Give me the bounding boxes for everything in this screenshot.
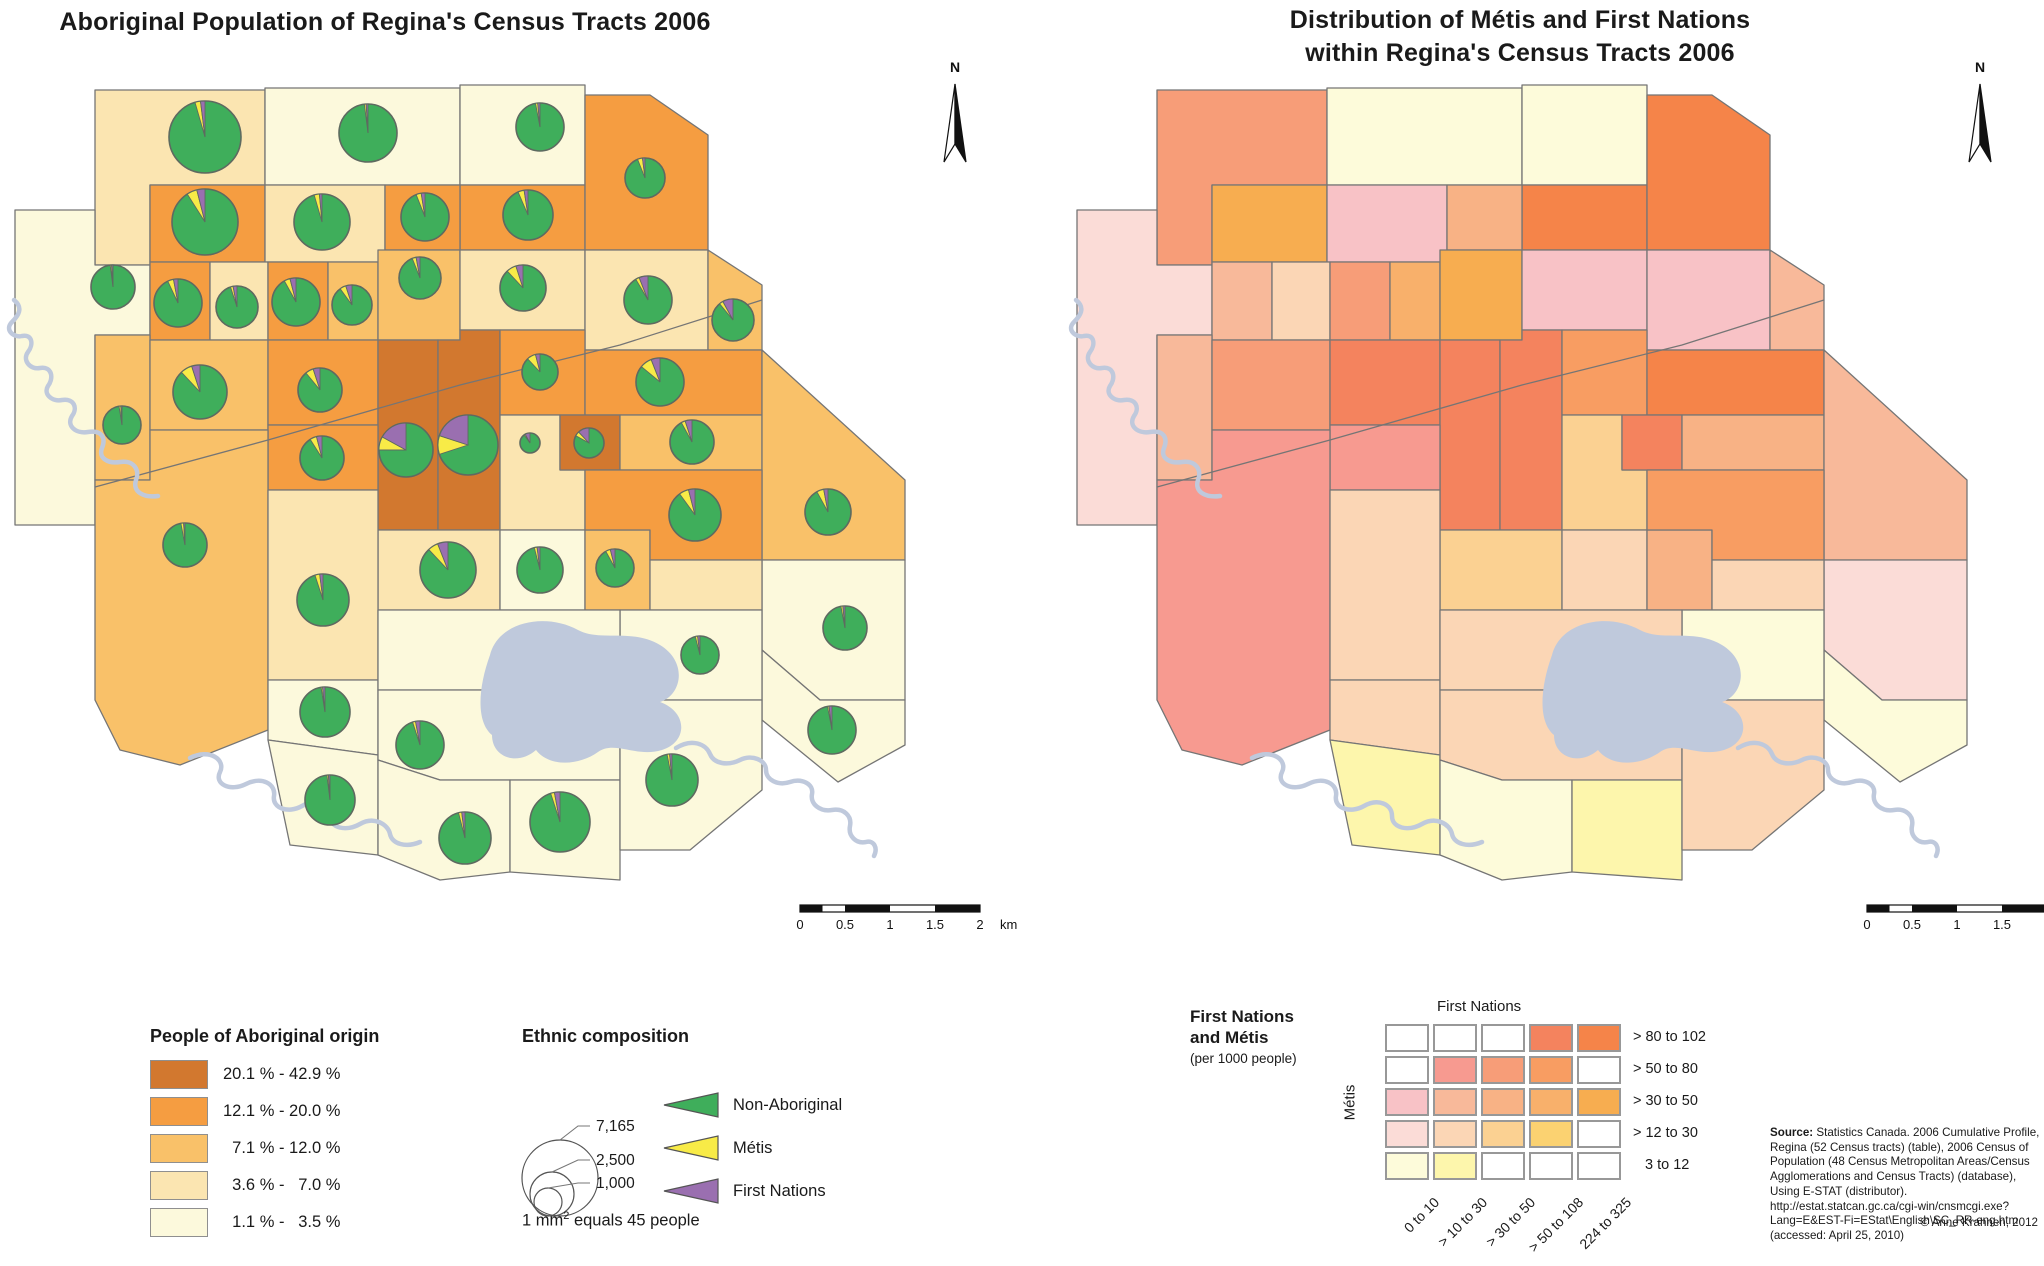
north-arrow-left-half bbox=[944, 84, 955, 162]
scale-bar: 00.511.52km bbox=[1863, 905, 2044, 932]
census-tract bbox=[1770, 250, 1824, 350]
wedge-label: Métis bbox=[733, 1139, 772, 1158]
pie-chart bbox=[332, 285, 372, 325]
matrix-row-label: 3 to 12 bbox=[1633, 1157, 1689, 1173]
north-label: N bbox=[950, 59, 960, 75]
bivariate-cell bbox=[1577, 1088, 1621, 1116]
census-tract bbox=[1390, 262, 1440, 340]
leader-line bbox=[560, 1126, 590, 1140]
scalebar-unit: km bbox=[1000, 917, 1017, 932]
class-label: 7.1 % - 12.0 % bbox=[223, 1139, 340, 1158]
bivariate-cell bbox=[1529, 1120, 1573, 1148]
pie-chart bbox=[401, 193, 449, 241]
pie-chart bbox=[300, 687, 350, 737]
bivariate-cell bbox=[1433, 1056, 1477, 1084]
ethnic-composition-title: Ethnic composition bbox=[522, 1026, 952, 1047]
pie-chart bbox=[500, 265, 546, 311]
bivariate-cell bbox=[1577, 1152, 1621, 1180]
size-value-large: 7,165 bbox=[596, 1118, 635, 1135]
census-tract bbox=[1272, 262, 1330, 340]
bivariate-cell bbox=[1385, 1024, 1429, 1052]
scalebar-label: 0 bbox=[796, 917, 803, 932]
pie-chart bbox=[522, 354, 558, 390]
pie-chart bbox=[216, 286, 258, 328]
metis-wedge-icon bbox=[662, 1134, 720, 1162]
pie-chart bbox=[103, 406, 141, 444]
pie-chart bbox=[574, 428, 604, 458]
bivariate-legend: First Nations and Métis (per 1000 people… bbox=[1190, 998, 1750, 1238]
class-swatch bbox=[150, 1097, 208, 1126]
right-map-title-line1: Distribution of Métis and First Nations bbox=[1060, 4, 1980, 37]
bivariate-cell bbox=[1481, 1056, 1525, 1084]
class-swatch bbox=[150, 1171, 208, 1200]
legend-class-row: 12.1 % - 20.0 % bbox=[150, 1097, 379, 1126]
first-nations-wedge-icon bbox=[662, 1177, 720, 1205]
census-tract bbox=[1824, 350, 1967, 560]
census-tract bbox=[1572, 780, 1682, 880]
pie-chart bbox=[91, 265, 135, 309]
bivariate-cell bbox=[1385, 1056, 1429, 1084]
pie-chart bbox=[294, 194, 350, 250]
bivariate-cell bbox=[1385, 1120, 1429, 1148]
census-tract bbox=[1330, 262, 1390, 340]
bivariate-cell bbox=[1529, 1024, 1573, 1052]
matrix-row-label: > 30 to 50 bbox=[1633, 1093, 1698, 1109]
north-arrow-right-half bbox=[955, 84, 966, 162]
pie-chart bbox=[172, 189, 238, 255]
scalebar-label: 0.5 bbox=[1903, 917, 1921, 932]
bivariate-cell bbox=[1577, 1120, 1621, 1148]
census-tract bbox=[1647, 250, 1770, 350]
north-arrow: N bbox=[944, 59, 966, 162]
matrix-row-label: > 80 to 102 bbox=[1633, 1029, 1706, 1045]
class-label: 1.1 % - 3.5 % bbox=[223, 1213, 340, 1232]
pie-chart bbox=[624, 276, 672, 324]
bivariate-cell bbox=[1481, 1088, 1525, 1116]
census-tract bbox=[1647, 350, 1824, 415]
pie-chart bbox=[163, 523, 207, 567]
pie-chart bbox=[516, 103, 564, 151]
pie-chart bbox=[438, 415, 498, 475]
size-value-medium: 2,500 bbox=[596, 1152, 635, 1169]
pie-chart bbox=[646, 754, 698, 806]
census-tract bbox=[1330, 340, 1440, 425]
pie-chart bbox=[298, 368, 342, 412]
pie-chart bbox=[339, 104, 397, 162]
bivariate-cell bbox=[1529, 1056, 1573, 1084]
bivariate-cell bbox=[1433, 1120, 1477, 1148]
census-tract bbox=[1500, 330, 1562, 530]
bivariate-subtitle: (per 1000 people) bbox=[1190, 1051, 1360, 1066]
bivariate-cell bbox=[1481, 1024, 1525, 1052]
census-tract bbox=[1440, 530, 1562, 610]
pie-chart bbox=[625, 158, 665, 198]
census-tract bbox=[1647, 95, 1770, 250]
pie-chart bbox=[169, 101, 241, 173]
census-tract bbox=[1327, 88, 1522, 185]
census-tract bbox=[1562, 330, 1647, 415]
leader-line bbox=[548, 1183, 590, 1188]
pie-chart bbox=[379, 423, 433, 477]
bivariate-cell bbox=[1433, 1024, 1477, 1052]
leader-line bbox=[552, 1160, 590, 1172]
left-map-title: Aboriginal Population of Regina's Census… bbox=[20, 6, 750, 39]
pie-chart bbox=[520, 433, 540, 453]
pie-chart bbox=[596, 549, 634, 587]
bivariate-cell bbox=[1385, 1088, 1429, 1116]
right-map-title-line2: within Regina's Census Tracts 2006 bbox=[1060, 37, 1980, 70]
pie-chart bbox=[399, 257, 441, 299]
census-tract bbox=[1212, 340, 1330, 430]
pie-chart bbox=[530, 792, 590, 852]
scalebar-label: 0.5 bbox=[836, 917, 854, 932]
scalebar-label: 0 bbox=[1863, 917, 1870, 932]
bivariate-cell bbox=[1385, 1152, 1429, 1180]
pie-chart bbox=[805, 489, 851, 535]
bivariate-title-line1: First Nations bbox=[1190, 1006, 1360, 1027]
census-tract bbox=[1522, 185, 1647, 250]
size-value-small: 1,000 bbox=[596, 1175, 635, 1192]
bivariate-cell bbox=[1577, 1024, 1621, 1052]
bivariate-cell bbox=[1433, 1088, 1477, 1116]
census-tract bbox=[1682, 415, 1824, 470]
bivariate-title-line2: and Métis bbox=[1190, 1027, 1360, 1048]
wascana-lake bbox=[481, 621, 682, 762]
bivariate-y-axis-title: Métis bbox=[1341, 1085, 1358, 1121]
bivariate-cell bbox=[1577, 1056, 1621, 1084]
census-tract bbox=[1647, 530, 1712, 610]
wedge-row-non-aboriginal: Non-Aboriginal bbox=[662, 1088, 842, 1122]
legend-class-row: 20.1 % - 42.9 % bbox=[150, 1060, 379, 1089]
scalebar-label: 2 bbox=[976, 917, 983, 932]
bivariate-cell bbox=[1529, 1088, 1573, 1116]
legend-class-row: 1.1 % - 3.5 % bbox=[150, 1208, 379, 1237]
pie-chart bbox=[439, 812, 491, 864]
bivariate-cell bbox=[1529, 1152, 1573, 1180]
class-swatch bbox=[150, 1134, 208, 1163]
source-label: Source: bbox=[1770, 1126, 1813, 1139]
pie-chart bbox=[297, 574, 349, 626]
legend-class-row: 7.1 % - 12.0 % bbox=[150, 1134, 379, 1163]
pie-chart bbox=[503, 190, 553, 240]
census-tract bbox=[1522, 250, 1647, 330]
pie-chart bbox=[712, 299, 754, 341]
legend-class-row: 3.6 % - 7.0 % bbox=[150, 1171, 379, 1200]
right-map: N00.511.52km bbox=[1022, 0, 2044, 960]
pie-chart bbox=[300, 436, 344, 480]
scalebar-label: 1 bbox=[886, 917, 893, 932]
bivariate-matrix bbox=[1385, 1024, 1621, 1180]
pie-chart bbox=[517, 547, 563, 593]
pie-chart bbox=[396, 721, 444, 769]
map-poster: { "left_panel": { "title": "Aboriginal P… bbox=[0, 0, 2044, 1238]
census-tract bbox=[1622, 415, 1682, 470]
pie-chart bbox=[154, 279, 202, 327]
bivariate-cell bbox=[1481, 1152, 1525, 1180]
class-label: 12.1 % - 20.0 % bbox=[223, 1102, 340, 1121]
bivariate-cell bbox=[1481, 1120, 1525, 1148]
class-label: 3.6 % - 7.0 % bbox=[223, 1176, 340, 1195]
census-tract bbox=[1327, 185, 1447, 262]
census-tract bbox=[1712, 560, 1824, 610]
class-swatch bbox=[150, 1208, 208, 1237]
census-tract bbox=[1522, 85, 1647, 185]
class-swatch bbox=[150, 1060, 208, 1089]
pie-chart bbox=[420, 542, 476, 598]
pie-chart bbox=[305, 775, 355, 825]
census-tract bbox=[1212, 262, 1272, 340]
bivariate-x-axis-title: First Nations bbox=[1437, 998, 1521, 1015]
ethnic-composition-legend: Ethnic composition 7,165 2,500 1,000 Non… bbox=[522, 1026, 952, 1238]
right-map-title: Distribution of Métis and First Nations … bbox=[1060, 4, 1980, 69]
census-tract bbox=[1330, 740, 1440, 855]
scalebar-label: 1.5 bbox=[1993, 917, 2011, 932]
bivariate-cell bbox=[1433, 1152, 1477, 1180]
wedge-row-metis: Métis bbox=[662, 1131, 772, 1165]
scale-caption: 1 mm2 equals 45 people bbox=[522, 1210, 700, 1231]
pie-chart bbox=[173, 365, 227, 419]
scalebar-label: 1.5 bbox=[926, 917, 944, 932]
pie-chart bbox=[272, 278, 320, 326]
matrix-row-label: > 12 to 30 bbox=[1633, 1125, 1698, 1141]
census-tract bbox=[650, 560, 762, 610]
scale-bar: 00.511.52km bbox=[796, 905, 1017, 932]
pie-chart bbox=[636, 358, 684, 406]
wascana-lake bbox=[1543, 621, 1744, 762]
pie-chart bbox=[681, 636, 719, 674]
pie-chart bbox=[808, 706, 856, 754]
non-aboriginal-wedge-icon bbox=[662, 1091, 720, 1119]
census-tract bbox=[1562, 530, 1647, 610]
pie-chart bbox=[823, 606, 867, 650]
bivariate-legend-heading: First Nations and Métis (per 1000 people… bbox=[1190, 1006, 1360, 1066]
choropleth-legend-title: People of Aboriginal origin bbox=[150, 1026, 379, 1047]
census-tract bbox=[1447, 185, 1522, 250]
wedge-label: Non-Aboriginal bbox=[733, 1096, 842, 1115]
left-map: N00.511.52km bbox=[0, 0, 1022, 960]
matrix-row-label: > 50 to 80 bbox=[1633, 1061, 1698, 1077]
north-arrow: N bbox=[1969, 59, 1991, 162]
pie-chart bbox=[670, 420, 714, 464]
class-label: 20.1 % - 42.9 % bbox=[223, 1065, 340, 1084]
pie-chart bbox=[669, 489, 721, 541]
north-arrow-right-half bbox=[1980, 84, 1991, 162]
census-tract bbox=[1440, 340, 1500, 530]
census-tract bbox=[1440, 250, 1522, 340]
wedge-row-first-nations: First Nations bbox=[662, 1174, 826, 1208]
wedge-label: First Nations bbox=[733, 1182, 826, 1201]
north-arrow-left-half bbox=[1969, 84, 1980, 162]
choropleth-legend: People of Aboriginal origin 20.1 % - 42.… bbox=[150, 1026, 379, 1245]
scalebar-label: 1 bbox=[1953, 917, 1960, 932]
census-tract bbox=[1330, 490, 1440, 680]
census-tract bbox=[1212, 185, 1327, 262]
copyright-note: © Anne Krahnen, 2012 bbox=[1921, 1216, 2039, 1229]
